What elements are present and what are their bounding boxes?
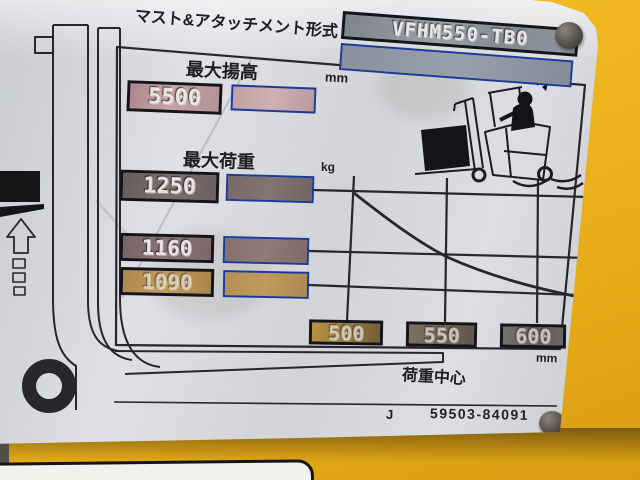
- capacity-row-stamped-box: [226, 174, 315, 203]
- capacity-value-1090: 1090: [141, 269, 192, 294]
- capacity-curve: [354, 193, 589, 299]
- max-load-label: 最大荷重: [183, 146, 256, 175]
- load-center-tick-box: 550: [406, 321, 477, 347]
- load-center-tick-600: 600: [515, 324, 552, 349]
- part-number: 59503-84091: [430, 405, 529, 423]
- chart-gridline-500: [347, 176, 354, 321]
- load-center-label: 荷重中心: [401, 361, 466, 389]
- capacity-row-stamped-box: [223, 236, 310, 265]
- load-unit: kg: [321, 160, 335, 174]
- load-square: [421, 125, 470, 171]
- fork-carriage-icon: [0, 171, 44, 217]
- fork-blade: [115, 351, 443, 374]
- chart-gridline-550: [445, 178, 447, 322]
- footer-prefix: J: [386, 407, 393, 422]
- lift-height-value-box: 5500: [126, 80, 222, 115]
- operator-arm: [500, 113, 514, 120]
- capacity-row-value-box: 1250: [120, 170, 220, 204]
- load-center-tick-500: 500: [328, 320, 365, 345]
- capacity-row-value-box: 1160: [120, 233, 215, 263]
- load-center-tick-box: 600: [500, 323, 566, 348]
- rivet-top-right: [555, 22, 583, 49]
- white-panel-below: [0, 459, 314, 480]
- capacity-value-1250: 1250: [143, 173, 197, 199]
- load-center-tick-box: 500: [309, 319, 383, 345]
- lift-height-unit: mm: [325, 69, 349, 85]
- max-lift-height-label: 最大揚高: [185, 55, 258, 85]
- load-center-unit: mm: [536, 351, 558, 366]
- capacity-row-value-box: 1090: [120, 267, 215, 297]
- capacity-plate: マスト&アタッチメント形式 VFHM550-TB0 最大揚高 mm 5500 最…: [0, 0, 640, 480]
- operator-body: [511, 103, 535, 131]
- tipping-reach-truck-icon: [415, 77, 583, 189]
- capacity-row-stamped-box: [223, 270, 310, 299]
- lift-height-stamped-box: [231, 84, 317, 113]
- capacity-value-1160: 1160: [141, 235, 192, 260]
- photo-of-capacity-plate: マスト&アタッチメント形式 VFHM550-TB0 最大揚高 mm 5500 最…: [0, 0, 640, 480]
- lift-arrow-icon: [7, 219, 35, 253]
- wheel-icon: [29, 366, 69, 406]
- chart-gridline-600: [537, 180, 538, 323]
- load-center-tick-550: 550: [423, 322, 460, 347]
- lift-height-value: 5500: [148, 84, 202, 111]
